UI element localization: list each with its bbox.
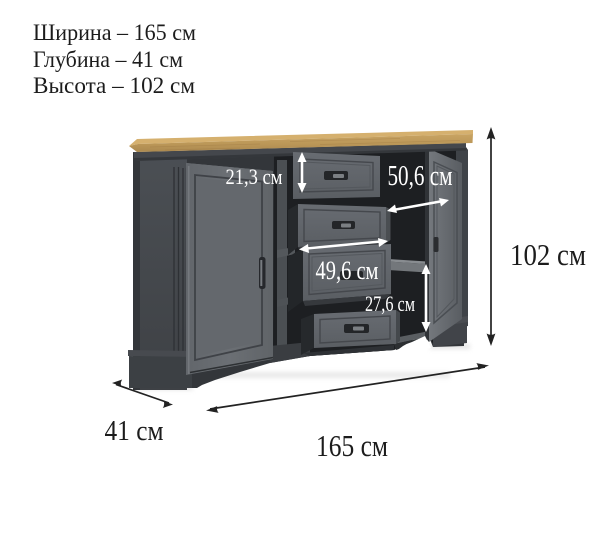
svg-text:41 см: 41 см (105, 415, 164, 447)
svg-text:49,6 см: 49,6 см (316, 256, 379, 285)
svg-text:165 см: 165 см (316, 428, 388, 463)
svg-text:Высота – 102 см: Высота – 102 см (33, 73, 195, 98)
svg-text:102 см: 102 см (510, 237, 586, 272)
svg-text:50,6 см: 50,6 см (388, 161, 453, 192)
svg-text:Ширина – 165 см: Ширина – 165 см (33, 20, 196, 45)
svg-text:Глубина – 41 см: Глубина – 41 см (33, 47, 183, 72)
svg-text:21,3 см: 21,3 см (226, 164, 283, 189)
svg-text:27,6 см: 27,6 см (365, 291, 415, 316)
